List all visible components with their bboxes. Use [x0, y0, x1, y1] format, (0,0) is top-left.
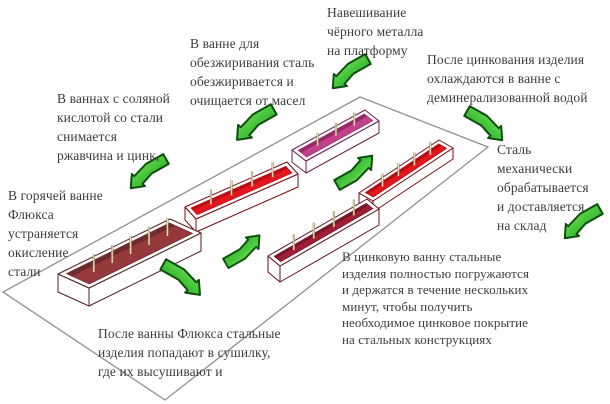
- label-degreasing-bath: В ванне для обезжиривания сталь обезжири…: [190, 34, 314, 110]
- label-flux-bath: В горячей ванне Флюкса устраняется окисл…: [8, 186, 103, 281]
- arrow-to-cooling-icon: [464, 106, 502, 140]
- label-cooling-bath: После цинкования изделия охлаждаются в в…: [427, 50, 588, 107]
- label-dryer: После ванны Флюкса стальные изделия попа…: [98, 324, 281, 381]
- label-zinc-bath: В цинковую ванну стальные изделия полнос…: [342, 249, 529, 348]
- label-to-warehouse: Сталь механически обрабатывается и доста…: [497, 140, 589, 235]
- label-acid-bath: В ваннах с соляной кислотой со стали сни…: [57, 89, 170, 165]
- label-hang-black-metal: Навешивание чёрного металла на платформу: [327, 3, 424, 60]
- galvanizing-process-diagram: Навешивание чёрного металла на платформу…: [0, 0, 610, 404]
